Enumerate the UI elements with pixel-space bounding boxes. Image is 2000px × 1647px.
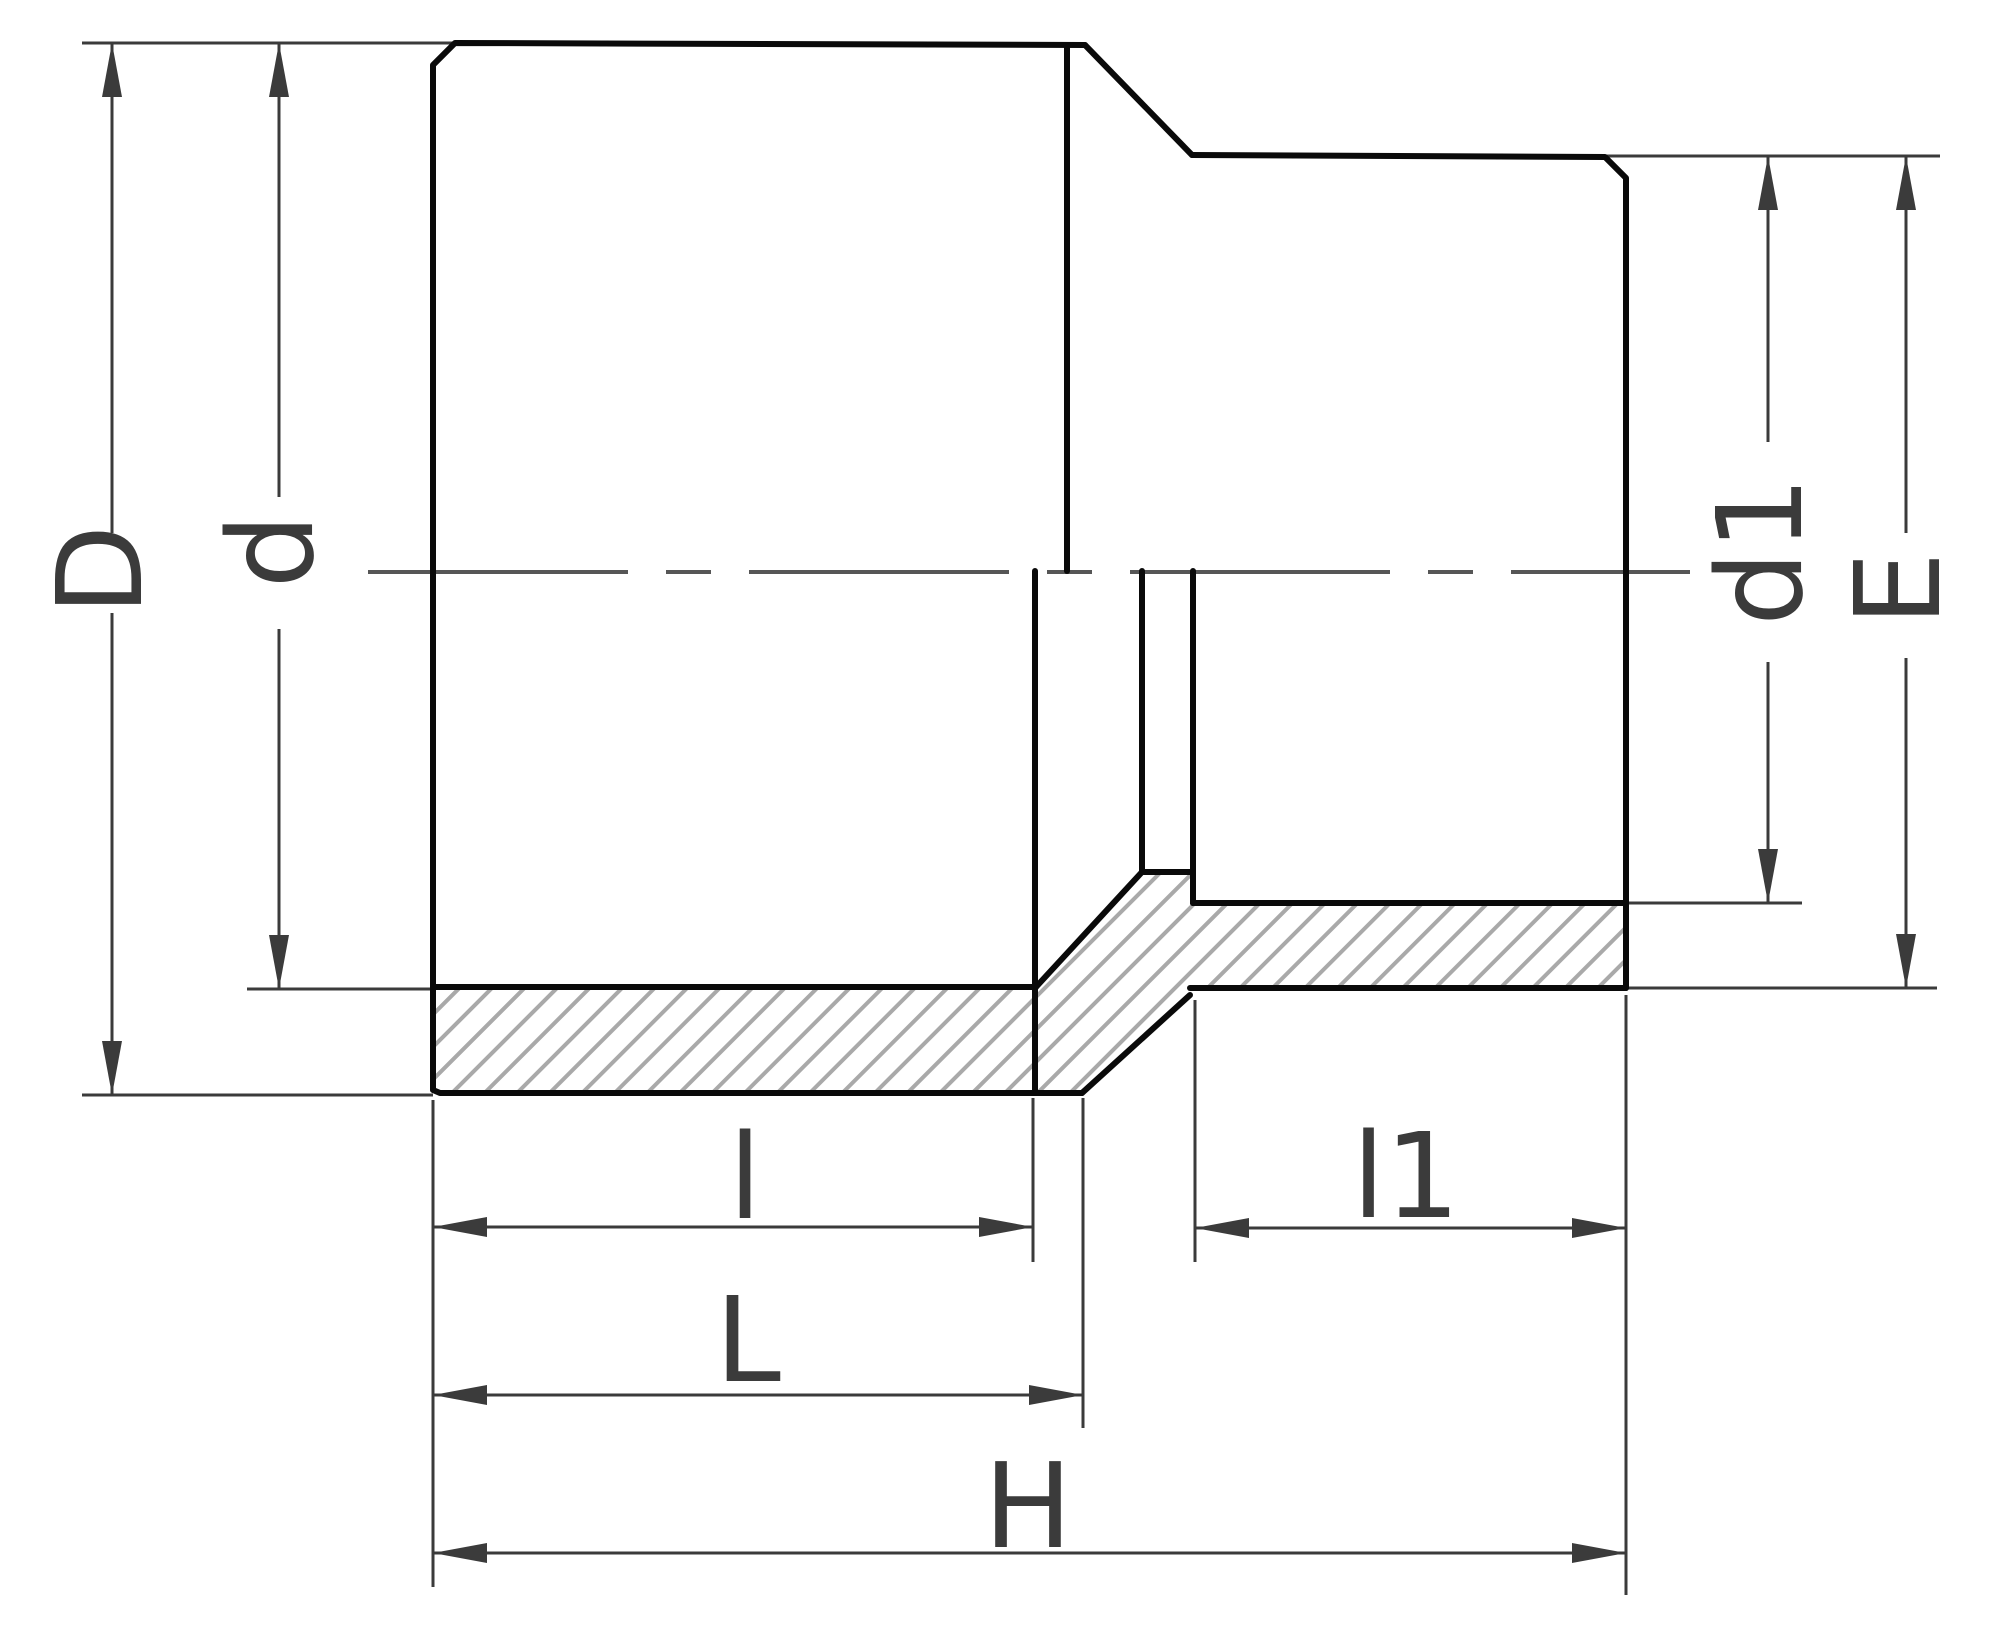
dimension-label-L: L <box>715 1281 781 1399</box>
dimension-label-d: d <box>212 514 330 589</box>
dimension-label-d1: d1 <box>1701 476 1819 626</box>
dimension-label-H: H <box>984 1447 1073 1565</box>
dimension-label-l: l <box>729 1118 762 1236</box>
dimension-label-D: D <box>41 525 159 616</box>
reducer-section-drawing <box>0 0 2000 1647</box>
dimension-label-E: E <box>1839 552 1957 627</box>
drawing-canvas: Ddd1ElLl1H <box>0 0 2000 1647</box>
dimension-label-l1: l1 <box>1352 1117 1460 1235</box>
